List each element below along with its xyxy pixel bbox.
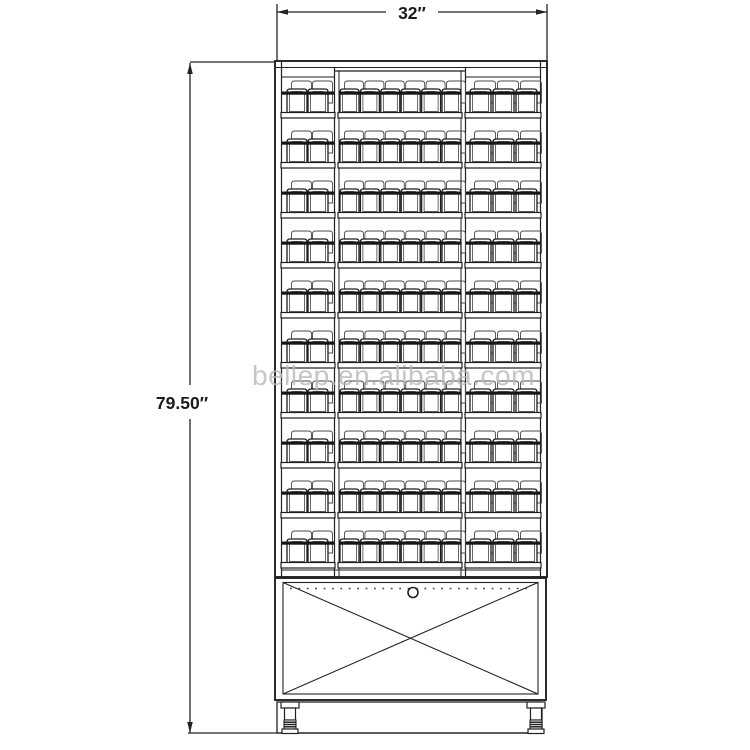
shelf-board	[338, 263, 462, 269]
foot-flange	[527, 702, 545, 708]
shelf-row	[281, 231, 542, 268]
shelf-column-left	[281, 281, 335, 318]
shelf-board	[281, 113, 335, 119]
shelf-column-left	[281, 131, 335, 168]
width-dimension-label: 32″	[398, 3, 426, 23]
shelf-front-rail	[282, 542, 334, 545]
shelf-column-center	[338, 531, 466, 568]
shelf-column-left	[281, 231, 335, 268]
shelf-column-left	[281, 481, 335, 518]
shelf-column-right	[465, 281, 542, 318]
shelf-row	[281, 181, 542, 218]
shelf-board	[338, 313, 462, 319]
shelf-board	[281, 263, 335, 269]
base-cabinet	[275, 578, 546, 700]
shelf-row	[281, 81, 542, 118]
shelf-column-right	[465, 531, 542, 568]
foot-stem	[531, 708, 542, 720]
width-dimension: 32″	[277, 3, 547, 60]
shelf-board	[281, 513, 335, 519]
shelf-column-center	[338, 231, 466, 268]
shelf-front-rail	[339, 442, 461, 445]
shelf-front-rail	[282, 342, 334, 345]
shelf-board	[281, 213, 335, 219]
dim-arrow-left-icon	[277, 9, 288, 15]
display-rack-drawing: 32″ 79.50″ b	[0, 0, 750, 750]
watermark: bellep.en.alibaba.com	[252, 360, 535, 391]
shelf-front-rail	[466, 292, 540, 295]
foot-pad	[528, 729, 544, 734]
shelf-front-rail	[339, 342, 461, 345]
shelf-column-right	[465, 81, 542, 118]
shelf-board	[465, 263, 541, 269]
dim-arrow-down-icon	[187, 722, 193, 733]
shelf-board	[281, 163, 335, 169]
shelf-column-center	[338, 431, 466, 468]
shelf-column-center	[338, 481, 466, 518]
shelf-front-rail	[339, 292, 461, 295]
foot-stem	[285, 708, 296, 720]
shelf-row	[281, 281, 542, 318]
shelf-board	[465, 513, 541, 519]
shelf-column-right	[465, 181, 542, 218]
shelf-front-rail	[282, 192, 334, 195]
leveling-feet	[281, 702, 545, 734]
shelf-front-rail	[339, 142, 461, 145]
shelf-board	[465, 213, 541, 219]
shelf-row	[281, 481, 542, 518]
shelf-column-center	[338, 181, 466, 218]
shelf-front-rail	[339, 392, 461, 395]
shelf-front-rail	[339, 92, 461, 95]
shelf-board	[465, 563, 541, 569]
shelf-front-rail	[282, 92, 334, 95]
shelf-front-rail	[466, 492, 540, 495]
height-dimension-label: 79.50″	[156, 393, 209, 413]
shelf-column-left	[281, 181, 335, 218]
shelf-row	[281, 431, 542, 468]
leveling-foot-left	[281, 702, 299, 734]
shelf-column-left	[281, 531, 335, 568]
shelf-column-right	[465, 231, 542, 268]
dim-arrow-up-icon	[187, 63, 193, 74]
shelf-front-rail	[282, 492, 334, 495]
shelf-board	[465, 313, 541, 319]
shelf-board	[338, 463, 462, 469]
shelf-board	[281, 563, 335, 569]
foot-pad	[282, 729, 298, 734]
shelf-front-rail	[339, 492, 461, 495]
plinth-outline	[277, 702, 542, 733]
shelf-row	[281, 531, 542, 568]
technical-drawing-page: 32″ 79.50″ b	[0, 0, 750, 750]
shelf-column-right	[465, 481, 542, 518]
shelf-board	[465, 163, 541, 169]
shelf-front-rail	[339, 242, 461, 245]
shelf-column-center	[338, 131, 466, 168]
shelf-front-rail	[339, 192, 461, 195]
shelf-board	[338, 413, 462, 419]
shelf-board	[465, 463, 541, 469]
foot-flange	[281, 702, 299, 708]
shelf-front-rail	[466, 192, 540, 195]
shelf-front-rail	[282, 442, 334, 445]
shelf-front-rail	[282, 392, 334, 395]
shelf-board	[338, 163, 462, 169]
shelf-front-rail	[282, 142, 334, 145]
shelf-column-right	[465, 431, 542, 468]
shelf-column-left	[281, 81, 335, 118]
shelf-front-rail	[466, 442, 540, 445]
shelf-front-rail	[466, 392, 540, 395]
shelf-board	[281, 313, 335, 319]
shelf-column-center	[338, 81, 466, 118]
lock-hole	[408, 588, 418, 598]
shelf-board	[465, 413, 541, 419]
shelf-front-rail	[466, 542, 540, 545]
shelf-column-left	[281, 431, 335, 468]
shelf-board	[281, 463, 335, 469]
shelf-front-rail	[282, 242, 334, 245]
shelf-column-right	[465, 131, 542, 168]
shelf-front-rail	[466, 142, 540, 145]
shelf-area	[281, 81, 542, 568]
shelf-board	[338, 213, 462, 219]
shelf-board	[338, 513, 462, 519]
shelf-column-center	[338, 281, 466, 318]
plinth	[188, 702, 543, 733]
shelf-front-rail	[282, 292, 334, 295]
shelf-front-rail	[466, 342, 540, 345]
shelf-front-rail	[466, 92, 540, 95]
shelf-board	[281, 413, 335, 419]
shelf-row	[281, 131, 542, 168]
shelf-front-rail	[466, 242, 540, 245]
dim-arrow-right-icon	[536, 9, 547, 15]
shelf-board	[338, 563, 462, 569]
height-dimension: 79.50″	[156, 62, 275, 733]
shelf-front-rail	[339, 542, 461, 545]
shelf-board	[338, 113, 462, 119]
shelf-board	[465, 113, 541, 119]
